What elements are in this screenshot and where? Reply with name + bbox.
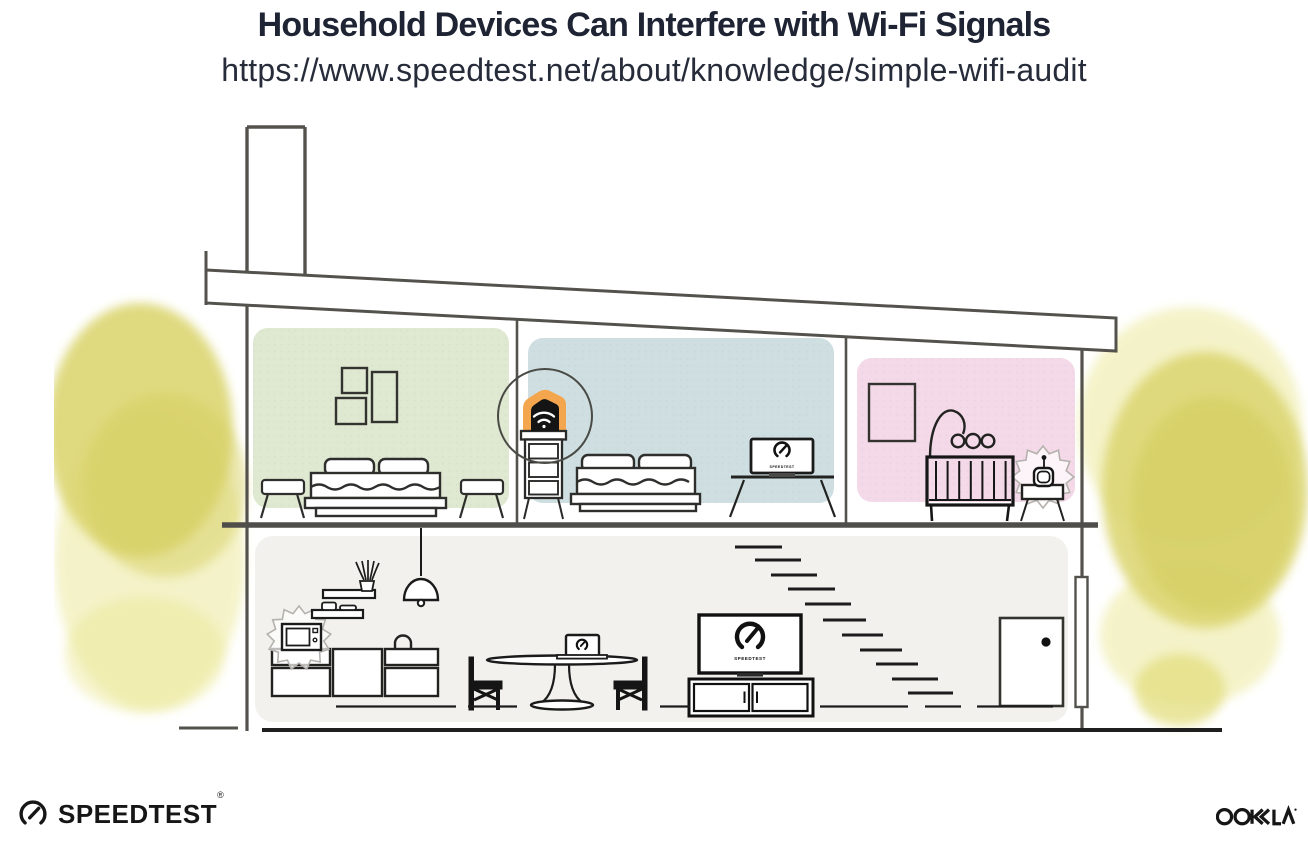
laptop-screen-label: SPEEDTEST (770, 465, 795, 469)
speedtest-logo: SPEEDTEST® (16, 797, 224, 831)
foliage-left-watercolor (47, 303, 247, 713)
ookla-logo (1216, 803, 1298, 834)
house-illustration: SPEEDTEST (0, 0, 1308, 861)
media-console (689, 679, 813, 716)
ground-lines (179, 728, 1222, 730)
foliage-right-watercolor (1078, 307, 1308, 726)
dresser (524, 440, 563, 520)
blue-bedroom-laptop: SPEEDTEST (751, 439, 813, 477)
speedtest-wordmark: SPEEDTEST (58, 799, 217, 829)
speedtest-gauge-icon (16, 797, 50, 831)
front-door (1000, 618, 1063, 706)
door-knob-icon (1041, 637, 1050, 646)
tv-speedtest: SPEEDTEST (699, 615, 801, 677)
tv-screen-label: SPEEDTEST (734, 656, 766, 661)
speedtest-registered-mark: ® (217, 790, 224, 800)
dresser-top (521, 431, 566, 440)
microwave-icon (282, 624, 321, 650)
downspout (1076, 577, 1088, 707)
ookla-wordmark-icon (1216, 803, 1298, 829)
infographic-canvas: Household Devices Can Interfere with Wi-… (0, 0, 1308, 861)
